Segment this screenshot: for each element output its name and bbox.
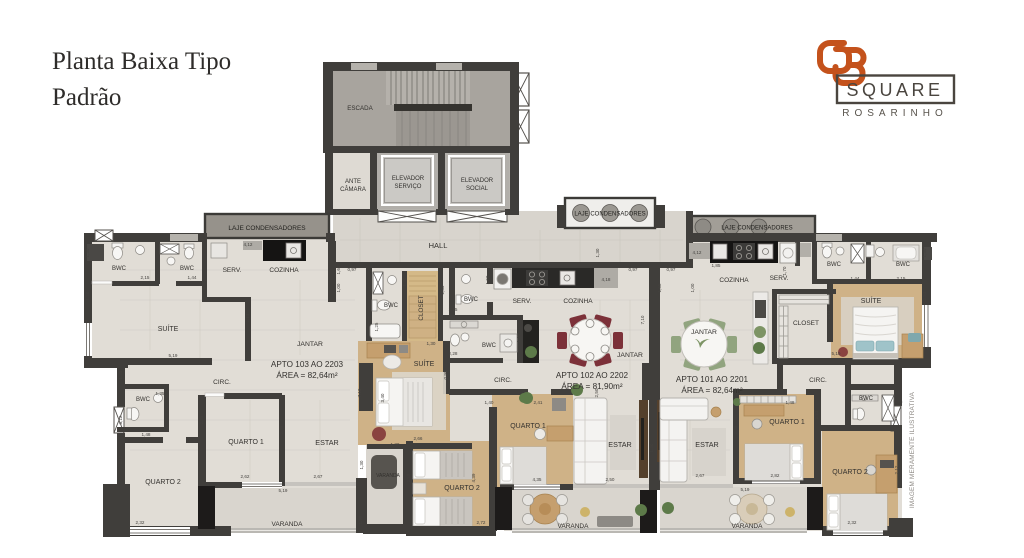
svg-text:2,30: 2,30: [440, 285, 445, 294]
svg-text:7,10: 7,10: [357, 388, 362, 397]
svg-text:ANTE: ANTE: [345, 179, 361, 185]
svg-text:5,19: 5,19: [279, 488, 288, 493]
svg-text:VARANDA: VARANDA: [376, 473, 400, 479]
svg-text:1,00: 1,00: [690, 283, 695, 292]
svg-text:VARANDA: VARANDA: [272, 521, 304, 528]
svg-text:1,40: 1,40: [485, 400, 494, 405]
svg-text:1,35: 1,35: [118, 370, 123, 379]
svg-text:ROSARINHO: ROSARINHO: [842, 108, 948, 119]
svg-text:2,12: 2,12: [894, 465, 899, 474]
svg-text:4,18: 4,18: [602, 277, 611, 282]
svg-text:0,97: 0,97: [348, 267, 357, 272]
svg-text:1,15: 1,15: [449, 307, 458, 312]
svg-text:1,48: 1,48: [786, 400, 795, 405]
svg-text:QUARTO 1: QUARTO 1: [510, 423, 546, 430]
svg-text:SQUARE: SQUARE: [846, 80, 943, 100]
svg-text:BWC: BWC: [827, 262, 842, 268]
svg-text:QUARTO 1: QUARTO 1: [769, 419, 805, 426]
svg-text:BWC: BWC: [464, 297, 479, 303]
svg-text:1,30: 1,30: [427, 341, 436, 346]
svg-text:3,12: 3,12: [118, 415, 123, 424]
svg-text:APTO 103 AO 2203: APTO 103 AO 2203: [271, 360, 344, 369]
svg-text:2,32: 2,32: [136, 520, 145, 525]
svg-text:1,30: 1,30: [391, 442, 400, 447]
svg-text:2,66: 2,66: [414, 436, 423, 441]
svg-text:4,39: 4,39: [471, 473, 476, 482]
svg-text:SUÍTE: SUÍTE: [158, 324, 179, 333]
svg-text:1,85: 1,85: [712, 263, 721, 268]
svg-text:2,82: 2,82: [771, 473, 780, 478]
svg-text:2,32: 2,32: [848, 520, 857, 525]
svg-text:2,62: 2,62: [241, 474, 250, 479]
svg-text:5,19: 5,19: [169, 353, 178, 358]
svg-text:2,72: 2,72: [477, 520, 486, 525]
svg-text:2,67: 2,67: [314, 474, 323, 479]
svg-text:2,28: 2,28: [449, 351, 458, 356]
svg-text:ESTAR: ESTAR: [695, 440, 718, 449]
svg-text:1,50: 1,50: [85, 291, 90, 300]
svg-text:2,39: 2,39: [279, 425, 284, 434]
svg-text:COZINHA: COZINHA: [269, 267, 299, 274]
svg-text:1,44: 1,44: [851, 276, 860, 281]
svg-text:1,22: 1,22: [516, 333, 521, 342]
svg-text:ESCADA: ESCADA: [347, 105, 373, 112]
svg-text:APTO 102 AO 2202: APTO 102 AO 2202: [556, 371, 629, 380]
svg-text:CIRC.: CIRC.: [213, 379, 231, 386]
svg-text:SERVIÇO: SERVIÇO: [395, 184, 422, 190]
svg-text:1,60: 1,60: [485, 275, 490, 284]
svg-text:2,13: 2,13: [245, 313, 250, 322]
svg-text:2,58: 2,58: [406, 473, 411, 482]
svg-text:1,30: 1,30: [402, 277, 407, 286]
svg-text:IMAGEM MERAMENTE ILUSTRATIVA: IMAGEM MERAMENTE ILUSTRATIVA: [909, 391, 916, 508]
svg-text:2,50: 2,50: [594, 388, 599, 397]
svg-text:VARANDA: VARANDA: [732, 523, 764, 530]
svg-text:0,90: 0,90: [443, 370, 448, 379]
svg-text:1,65: 1,65: [657, 283, 662, 292]
svg-text:LAJE CONDENSADORES: LAJE CONDENSADORES: [721, 226, 792, 232]
svg-text:0,97: 0,97: [629, 267, 638, 272]
svg-text:BWC: BWC: [112, 266, 127, 272]
svg-text:CLOSET: CLOSET: [418, 295, 425, 320]
svg-text:SUÍTE: SUÍTE: [414, 359, 435, 368]
svg-text:SERV.: SERV.: [223, 267, 242, 274]
svg-text:1,30: 1,30: [85, 248, 90, 257]
svg-text:5,19: 5,19: [832, 351, 841, 356]
svg-text:BWC: BWC: [180, 266, 195, 272]
svg-text:2,13: 2,13: [826, 310, 831, 319]
svg-text:2,12: 2,12: [118, 455, 123, 464]
svg-text:SUÍTE: SUÍTE: [861, 296, 882, 305]
svg-text:2,15: 2,15: [897, 276, 906, 281]
svg-text:2,15: 2,15: [141, 275, 150, 280]
svg-text:LAJE CONDENSADORES: LAJE CONDENSADORES: [228, 225, 306, 232]
svg-text:SOCIAL: SOCIAL: [466, 186, 489, 192]
svg-text:2,39: 2,39: [199, 415, 204, 424]
svg-text:1,98: 1,98: [358, 515, 363, 524]
svg-text:CIRC.: CIRC.: [494, 377, 512, 384]
svg-text:5,19: 5,19: [741, 487, 750, 492]
svg-text:1,00: 1,00: [336, 283, 341, 292]
svg-text:HALL: HALL: [429, 241, 448, 250]
svg-text:BWC: BWC: [896, 262, 911, 268]
svg-text:ELEVADOR: ELEVADOR: [461, 178, 494, 184]
svg-text:QUARTO 2: QUARTO 2: [444, 485, 480, 492]
svg-text:0,96: 0,96: [894, 399, 903, 404]
svg-text:1,65: 1,65: [336, 265, 341, 274]
svg-text:1,30: 1,30: [922, 248, 927, 257]
svg-text:7,10: 7,10: [640, 315, 645, 324]
svg-text:4,35: 4,35: [533, 477, 542, 482]
svg-text:BWC: BWC: [482, 343, 497, 349]
svg-text:ÁREA = 82,64m²: ÁREA = 82,64m²: [276, 370, 337, 380]
svg-text:QUARTO 2: QUARTO 2: [832, 469, 868, 476]
svg-text:2,53: 2,53: [922, 291, 927, 300]
svg-text:2,67: 2,67: [696, 473, 705, 478]
svg-text:ÁREA = 81,90m²: ÁREA = 81,90m²: [561, 381, 622, 391]
svg-text:1,48: 1,48: [142, 432, 151, 437]
svg-text:COZINHA: COZINHA: [719, 277, 749, 284]
svg-text:ESTAR: ESTAR: [608, 440, 631, 449]
svg-text:2,53: 2,53: [814, 410, 819, 419]
svg-text:2,39: 2,39: [733, 425, 738, 434]
svg-text:4,12: 4,12: [693, 250, 702, 255]
svg-text:ÁREA = 82,64m²: ÁREA = 82,64m²: [681, 385, 742, 395]
svg-text:2,50: 2,50: [606, 477, 615, 482]
svg-text:CIRC.: CIRC.: [809, 377, 827, 384]
svg-text:1,30: 1,30: [649, 443, 654, 452]
svg-text:CLOSET: CLOSET: [793, 320, 819, 327]
svg-text:COZINHA: COZINHA: [563, 298, 593, 305]
svg-text:JANTAR: JANTAR: [617, 352, 643, 359]
svg-text:QUARTO 1: QUARTO 1: [228, 439, 264, 446]
svg-text:1,30: 1,30: [595, 248, 600, 257]
svg-text:1,30: 1,30: [359, 460, 364, 469]
svg-text:CÂMARA: CÂMARA: [340, 186, 366, 193]
svg-text:QUARTO 2: QUARTO 2: [145, 479, 181, 486]
svg-text:3,40: 3,40: [380, 393, 385, 402]
svg-text:BWC: BWC: [384, 303, 399, 309]
svg-text:1,44: 1,44: [188, 275, 197, 280]
svg-text:APTO 101 AO 2201: APTO 101 AO 2201: [676, 375, 749, 384]
svg-text:BWC: BWC: [136, 397, 151, 403]
svg-text:0,97: 0,97: [667, 267, 676, 272]
svg-text:ELEVADOR: ELEVADOR: [392, 176, 425, 182]
svg-text:JANTAR: JANTAR: [691, 329, 717, 336]
svg-text:BWC: BWC: [859, 396, 874, 402]
svg-text:1,25: 1,25: [374, 322, 379, 331]
svg-text:2,41: 2,41: [534, 400, 543, 405]
svg-text:4,12: 4,12: [244, 242, 253, 247]
svg-text:VARANDA: VARANDA: [558, 523, 590, 530]
svg-text:1,70: 1,70: [782, 266, 787, 275]
svg-text:1,35: 1,35: [156, 391, 165, 396]
svg-text:JANTAR: JANTAR: [297, 341, 323, 348]
svg-text:LAJE CONDENSADORES: LAJE CONDENSADORES: [574, 212, 645, 218]
svg-text:SERV.: SERV.: [513, 298, 532, 305]
svg-text:ESTAR: ESTAR: [315, 438, 338, 447]
